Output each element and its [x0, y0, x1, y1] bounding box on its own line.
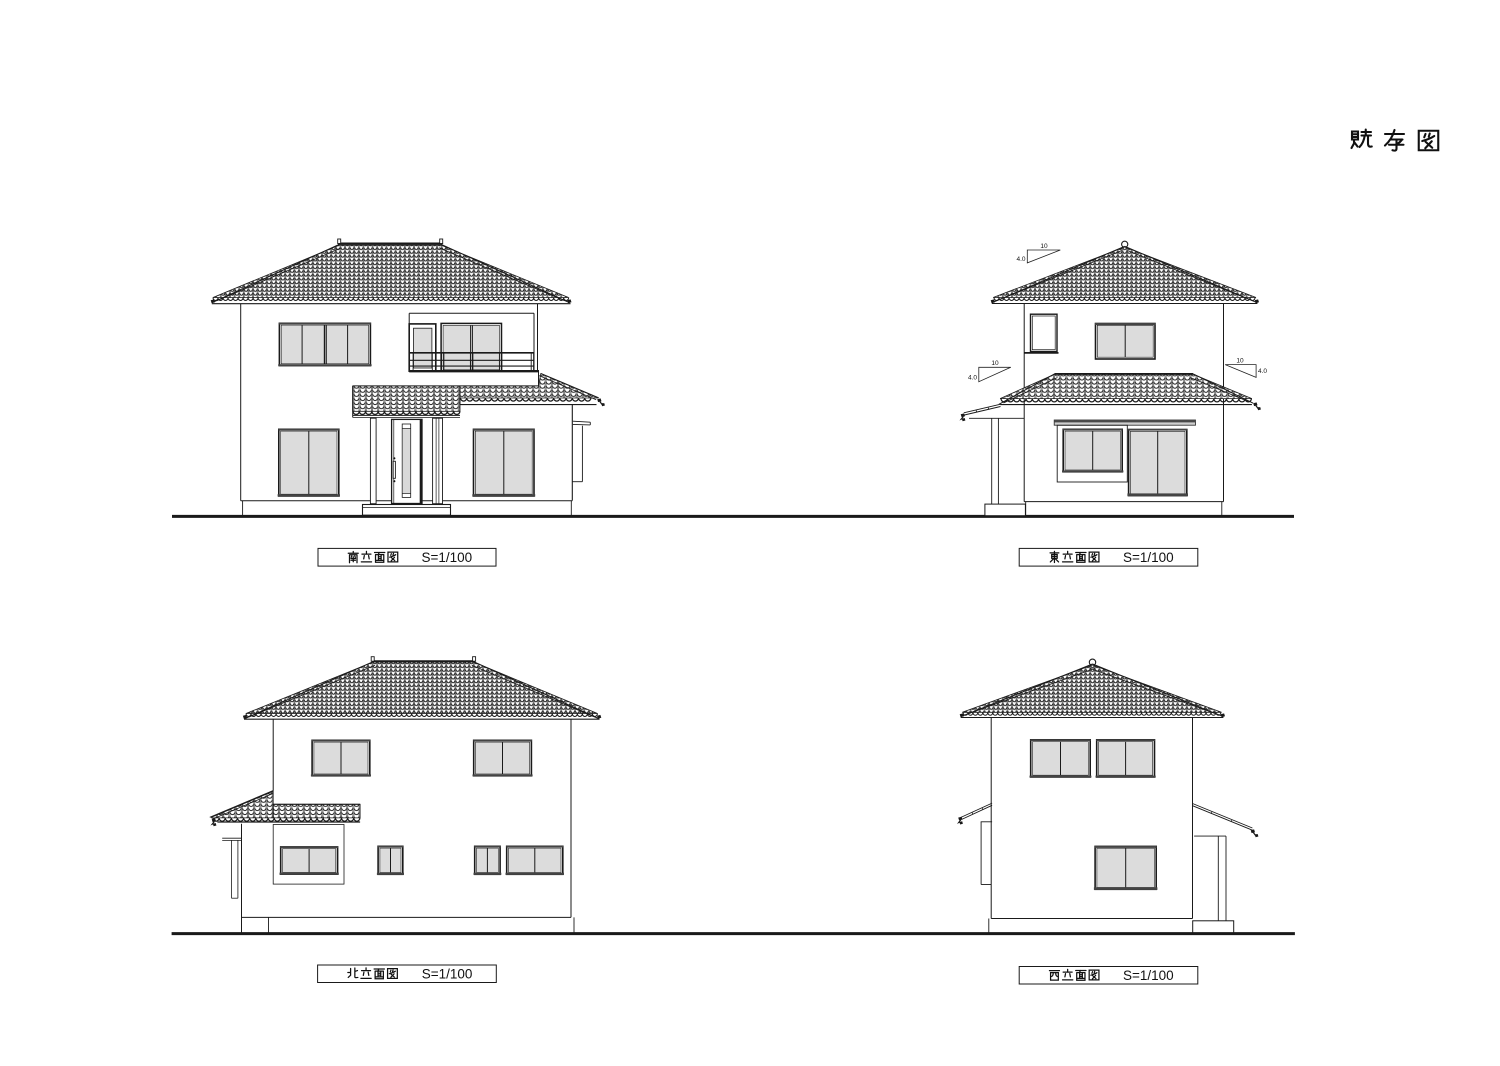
svg-text:4.0: 4.0	[1258, 368, 1267, 375]
svg-text:4.0: 4.0	[968, 375, 977, 382]
svg-text:4.0: 4.0	[1016, 256, 1025, 263]
svg-text:10: 10	[1236, 357, 1244, 364]
svg-text:S=1/100: S=1/100	[422, 550, 473, 565]
svg-text:10: 10	[1040, 243, 1048, 250]
svg-text:10: 10	[991, 360, 999, 367]
svg-text:S=1/100: S=1/100	[1123, 968, 1174, 983]
svg-text:S=1/100: S=1/100	[422, 966, 473, 981]
svg-text:S=1/100: S=1/100	[1123, 550, 1174, 565]
